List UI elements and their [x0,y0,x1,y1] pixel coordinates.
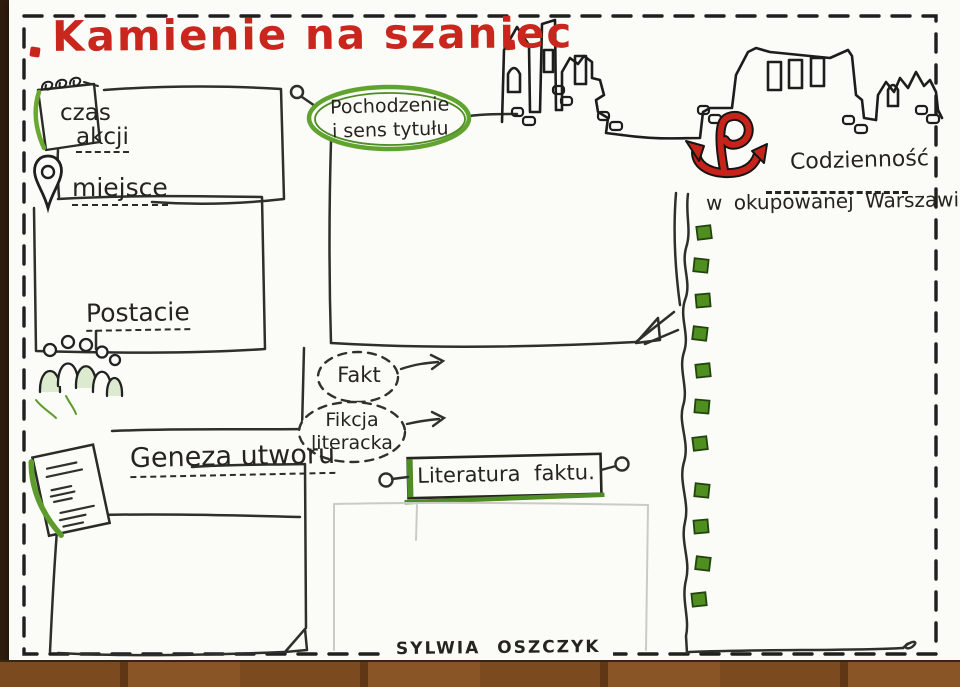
title-dot-left [29,46,40,57]
label-pochodzenie: Pochodzenie i sens tytułu [311,93,468,145]
czas-line1: czas [60,101,129,125]
notebook-strip-edge [675,193,916,653]
author-signature: SYLWIA OSZCZYK [384,639,613,659]
people-group-icon [22,330,124,422]
fikcja-arrow [407,419,439,424]
kotwica-anchor-icon [672,108,776,182]
label-postacie: Postacie [86,297,190,332]
label-literatura-faktu: Literatura faktu. [412,461,600,487]
faint-notes-box [334,503,648,650]
label-codziennosc: Codzienność [790,147,929,174]
label-fakt: Fakt [320,364,398,386]
label-miejsce: miejsce [72,173,168,206]
label-czas-akcji: czas akcji [60,101,129,153]
label-fikcja-literacka: Fikcja literacka [300,409,404,455]
document-icon [18,436,126,544]
green-checkbox-column [691,225,711,607]
location-pin-icon [30,152,66,214]
czas-line2: akcji [76,125,129,153]
page-title: Kamienie na szaniec [52,11,574,59]
label-okupowana-warszawa: w okupowanej Warszawie [706,189,960,214]
